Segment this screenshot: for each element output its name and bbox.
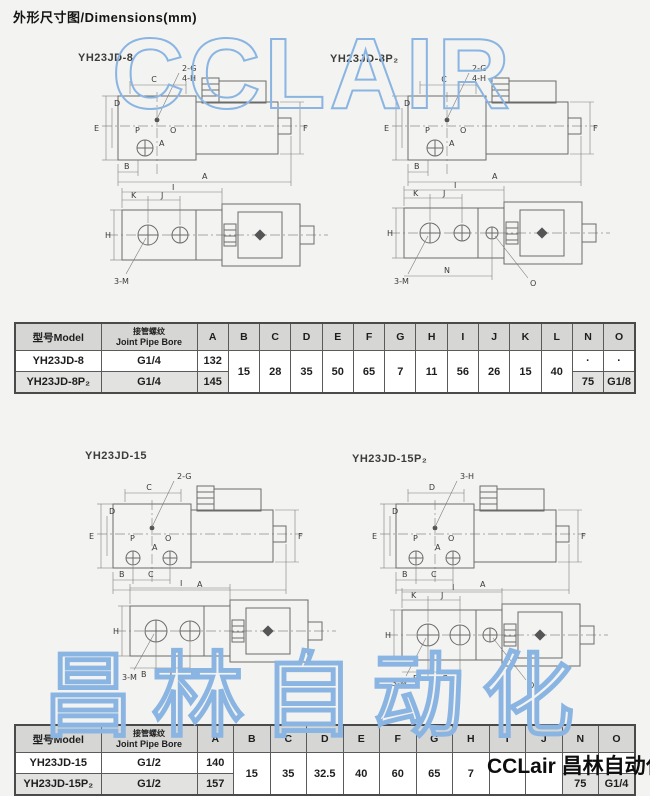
dim-label-b: B: [124, 162, 130, 171]
header-cell: B: [228, 323, 259, 351]
value-cell: 140: [197, 753, 234, 774]
callout-4h: 4-H: [182, 74, 196, 83]
header-cell-bore: 接管螺纹 Joint Pipe Bore: [101, 725, 197, 753]
callout-2g: 2-G: [472, 64, 486, 73]
bore-label-cn: 接管螺纹: [102, 327, 197, 337]
port-label-o: O: [448, 534, 454, 543]
header-cell: H: [416, 323, 447, 351]
callout-3m: 3-M: [394, 277, 409, 286]
value-cell: 7: [385, 351, 416, 394]
dim-label-b: B: [141, 670, 147, 679]
value-cell: 56: [447, 351, 478, 394]
value-cell: 15: [510, 351, 541, 394]
line-art: [108, 188, 328, 274]
dim-label-j: J: [442, 189, 445, 198]
dim-label-n: N: [444, 266, 450, 275]
callout-3m: 3-M: [114, 277, 129, 286]
line-art: [390, 186, 610, 280]
drawing-yh23jd-8-side-view: C 2-G 4-H P O A E D B A F: [90, 58, 335, 190]
dim-label-h: H: [385, 631, 391, 640]
dim-label-c: C: [441, 75, 447, 84]
brand-overlay-text: CCLair 昌林自动化: [487, 750, 650, 780]
callout-o: O: [528, 681, 534, 690]
header-cell: J: [479, 323, 510, 351]
header-cell: N: [572, 323, 603, 351]
dim-label-e: E: [372, 532, 377, 541]
header-cell-model: 型号Model: [15, 725, 101, 753]
drawing-label-yh23jd-15p2: YH23JD-15P₂: [352, 453, 427, 465]
value-cell: 50: [322, 351, 353, 394]
bore-label-en: Joint Pipe Bore: [102, 739, 197, 749]
header-cell: N: [562, 725, 599, 753]
dim-label-d: D: [114, 99, 120, 108]
dim-label-h: H: [387, 229, 393, 238]
value-cell: 145: [197, 372, 228, 394]
dim-label-j: J: [440, 591, 443, 600]
bore-cell: G1/4: [101, 372, 197, 394]
callout-2g: 2-G: [177, 472, 191, 481]
dim-label-d: D: [109, 507, 115, 516]
line-art: [388, 588, 608, 680]
dim-label-f: F: [581, 532, 586, 541]
callout-3h: 3-H: [460, 472, 474, 481]
port-label-a: A: [449, 139, 455, 148]
dim-label-i: I: [172, 183, 174, 192]
callout-3m: 3-M: [122, 673, 137, 682]
dim-label-e: E: [94, 124, 99, 133]
line-art: [392, 73, 598, 186]
dim-label-h: H: [113, 627, 119, 636]
dim-label-d: D: [404, 99, 410, 108]
dim-label-i: I: [454, 181, 456, 190]
callout-4h: 4-H: [472, 74, 486, 83]
value-cell: 132: [197, 351, 228, 372]
value-cell: ·: [572, 351, 603, 372]
value-cell: 40: [541, 351, 572, 394]
value-cell: 15: [234, 753, 271, 796]
header-cell: K: [510, 323, 541, 351]
header-cell: C: [270, 725, 307, 753]
value-cell: 65: [416, 753, 453, 796]
bore-label-en: Joint Pipe Bore: [102, 337, 197, 347]
header-cell: O: [599, 725, 636, 753]
dim-label-f: F: [303, 124, 308, 133]
drawing-yh23jd-8p2-bottom-view: I K J H 3-M N O: [382, 178, 622, 296]
header-cell: F: [380, 725, 417, 753]
drawing-yh23jd-8p2-side-view: C 2-G 4-H P O A E D B A F: [380, 58, 625, 190]
dim-label-j: J: [160, 191, 163, 200]
port-label-p: P: [135, 126, 140, 135]
dim-label-c: C: [151, 75, 157, 84]
header-cell: B: [234, 725, 271, 753]
port-label-a: A: [152, 543, 158, 552]
value-cell: 11: [416, 351, 447, 394]
table-header-row: 型号Model 接管螺纹 Joint Pipe Bore A B C D E F…: [15, 725, 635, 753]
value-cell: G1/8: [604, 372, 635, 394]
dim-label-b: B: [402, 570, 408, 579]
header-cell: L: [541, 323, 572, 351]
drawing-yh23jd-15-bottom-view: I H 3-M B C: [108, 576, 348, 688]
value-cell: 26: [479, 351, 510, 394]
callout-2g: 2-G: [182, 64, 196, 73]
dim-label-d: D: [429, 483, 435, 492]
value-cell: 157: [197, 774, 234, 796]
callout-3m: 3-M: [392, 679, 407, 688]
model-cell: YH23JD-15P₂: [15, 774, 101, 796]
bore-label-cn: 接管螺纹: [102, 729, 197, 739]
dim-label-h: H: [105, 231, 111, 240]
dim-label-d2: D: [392, 507, 398, 516]
port-label-p: P: [413, 534, 418, 543]
dim-label-k: K: [411, 591, 417, 600]
value-cell: 28: [260, 351, 291, 394]
dimensions-table-8: 型号Model 接管螺纹 Joint Pipe Bore A B C D E F…: [14, 322, 636, 394]
dim-label-c: C: [170, 670, 176, 679]
page-title: 外形尺寸图/Dimensions(mm): [13, 7, 197, 26]
model-cell: YH23JD-8: [15, 351, 101, 372]
dim-label-f: F: [593, 124, 598, 133]
table-header-row: 型号Model 接管螺纹 Joint Pipe Bore A B C D E F…: [15, 323, 635, 351]
dim-label-k: K: [131, 191, 137, 200]
bore-cell: G1/4: [101, 351, 197, 372]
header-cell-model: 型号Model: [15, 323, 101, 351]
table-row: YH23JD-8 G1/4 132 15 28 35 50 65 7 11 56…: [15, 351, 635, 372]
dim-label-k: K: [413, 189, 419, 198]
dim-label-c2: C: [431, 570, 437, 579]
header-cell: I: [489, 725, 526, 753]
header-cell: A: [197, 323, 228, 351]
model-cell: YH23JD-8P₂: [15, 372, 101, 394]
dim-label-f: F: [298, 532, 303, 541]
bore-cell: G1/2: [101, 753, 197, 774]
header-cell: J: [526, 725, 563, 753]
dim-label-c: C: [442, 674, 448, 683]
header-cell: I: [447, 323, 478, 351]
value-cell: 75: [572, 372, 603, 394]
header-cell: E: [322, 323, 353, 351]
header-cell-bore: 接管螺纹 Joint Pipe Bore: [101, 323, 197, 351]
port-label-o: O: [170, 126, 176, 135]
catalog-page: { "page": { "title": "外形尺寸图/Dimensions(m…: [0, 0, 650, 790]
header-cell: G: [416, 725, 453, 753]
value-cell: 32.5: [307, 753, 344, 796]
value-cell: 40: [343, 753, 380, 796]
header-cell: F: [353, 323, 384, 351]
dim-label-b: B: [413, 674, 419, 683]
port-label-o: O: [460, 126, 466, 135]
dim-label-e: E: [384, 124, 389, 133]
port-label-p: P: [130, 534, 135, 543]
drawing-yh23jd-8-bottom-view: I K J H 3-M: [100, 180, 340, 292]
header-cell: A: [197, 725, 234, 753]
header-cell: D: [291, 323, 322, 351]
port-label-o: O: [165, 534, 171, 543]
dim-label-c: C: [146, 483, 152, 492]
header-cell: E: [343, 725, 380, 753]
port-label-a: A: [159, 139, 165, 148]
value-cell: 15: [228, 351, 259, 394]
callout-o: O: [530, 279, 536, 288]
line-art: [116, 584, 336, 672]
line-art: [102, 73, 308, 186]
port-label-p: P: [425, 126, 430, 135]
dim-label-b: B: [414, 162, 420, 171]
header-cell: O: [604, 323, 635, 351]
drawing-yh23jd-15p2-side-view: D 3-H P O A E D B C A F: [368, 466, 613, 598]
value-cell: 7: [453, 753, 490, 796]
value-cell: 35: [270, 753, 307, 796]
dim-label-e: E: [89, 532, 94, 541]
value-cell: ·: [604, 351, 635, 372]
header-cell: D: [307, 725, 344, 753]
header-cell: H: [453, 725, 490, 753]
header-cell: G: [385, 323, 416, 351]
dim-label-i: I: [452, 583, 454, 592]
model-cell: YH23JD-15: [15, 753, 101, 774]
port-label-a: A: [435, 543, 441, 552]
bore-cell: G1/2: [101, 774, 197, 796]
value-cell: 35: [291, 351, 322, 394]
value-cell: 65: [353, 351, 384, 394]
value-cell: 60: [380, 753, 417, 796]
line-art: [380, 481, 586, 594]
drawing-yh23jd-15p2-bottom-view: I K J H 3-M B C O: [380, 580, 620, 698]
drawing-label-yh23jd-15: YH23JD-15: [85, 450, 147, 462]
header-cell: C: [260, 323, 291, 351]
dim-label-i: I: [180, 579, 182, 588]
